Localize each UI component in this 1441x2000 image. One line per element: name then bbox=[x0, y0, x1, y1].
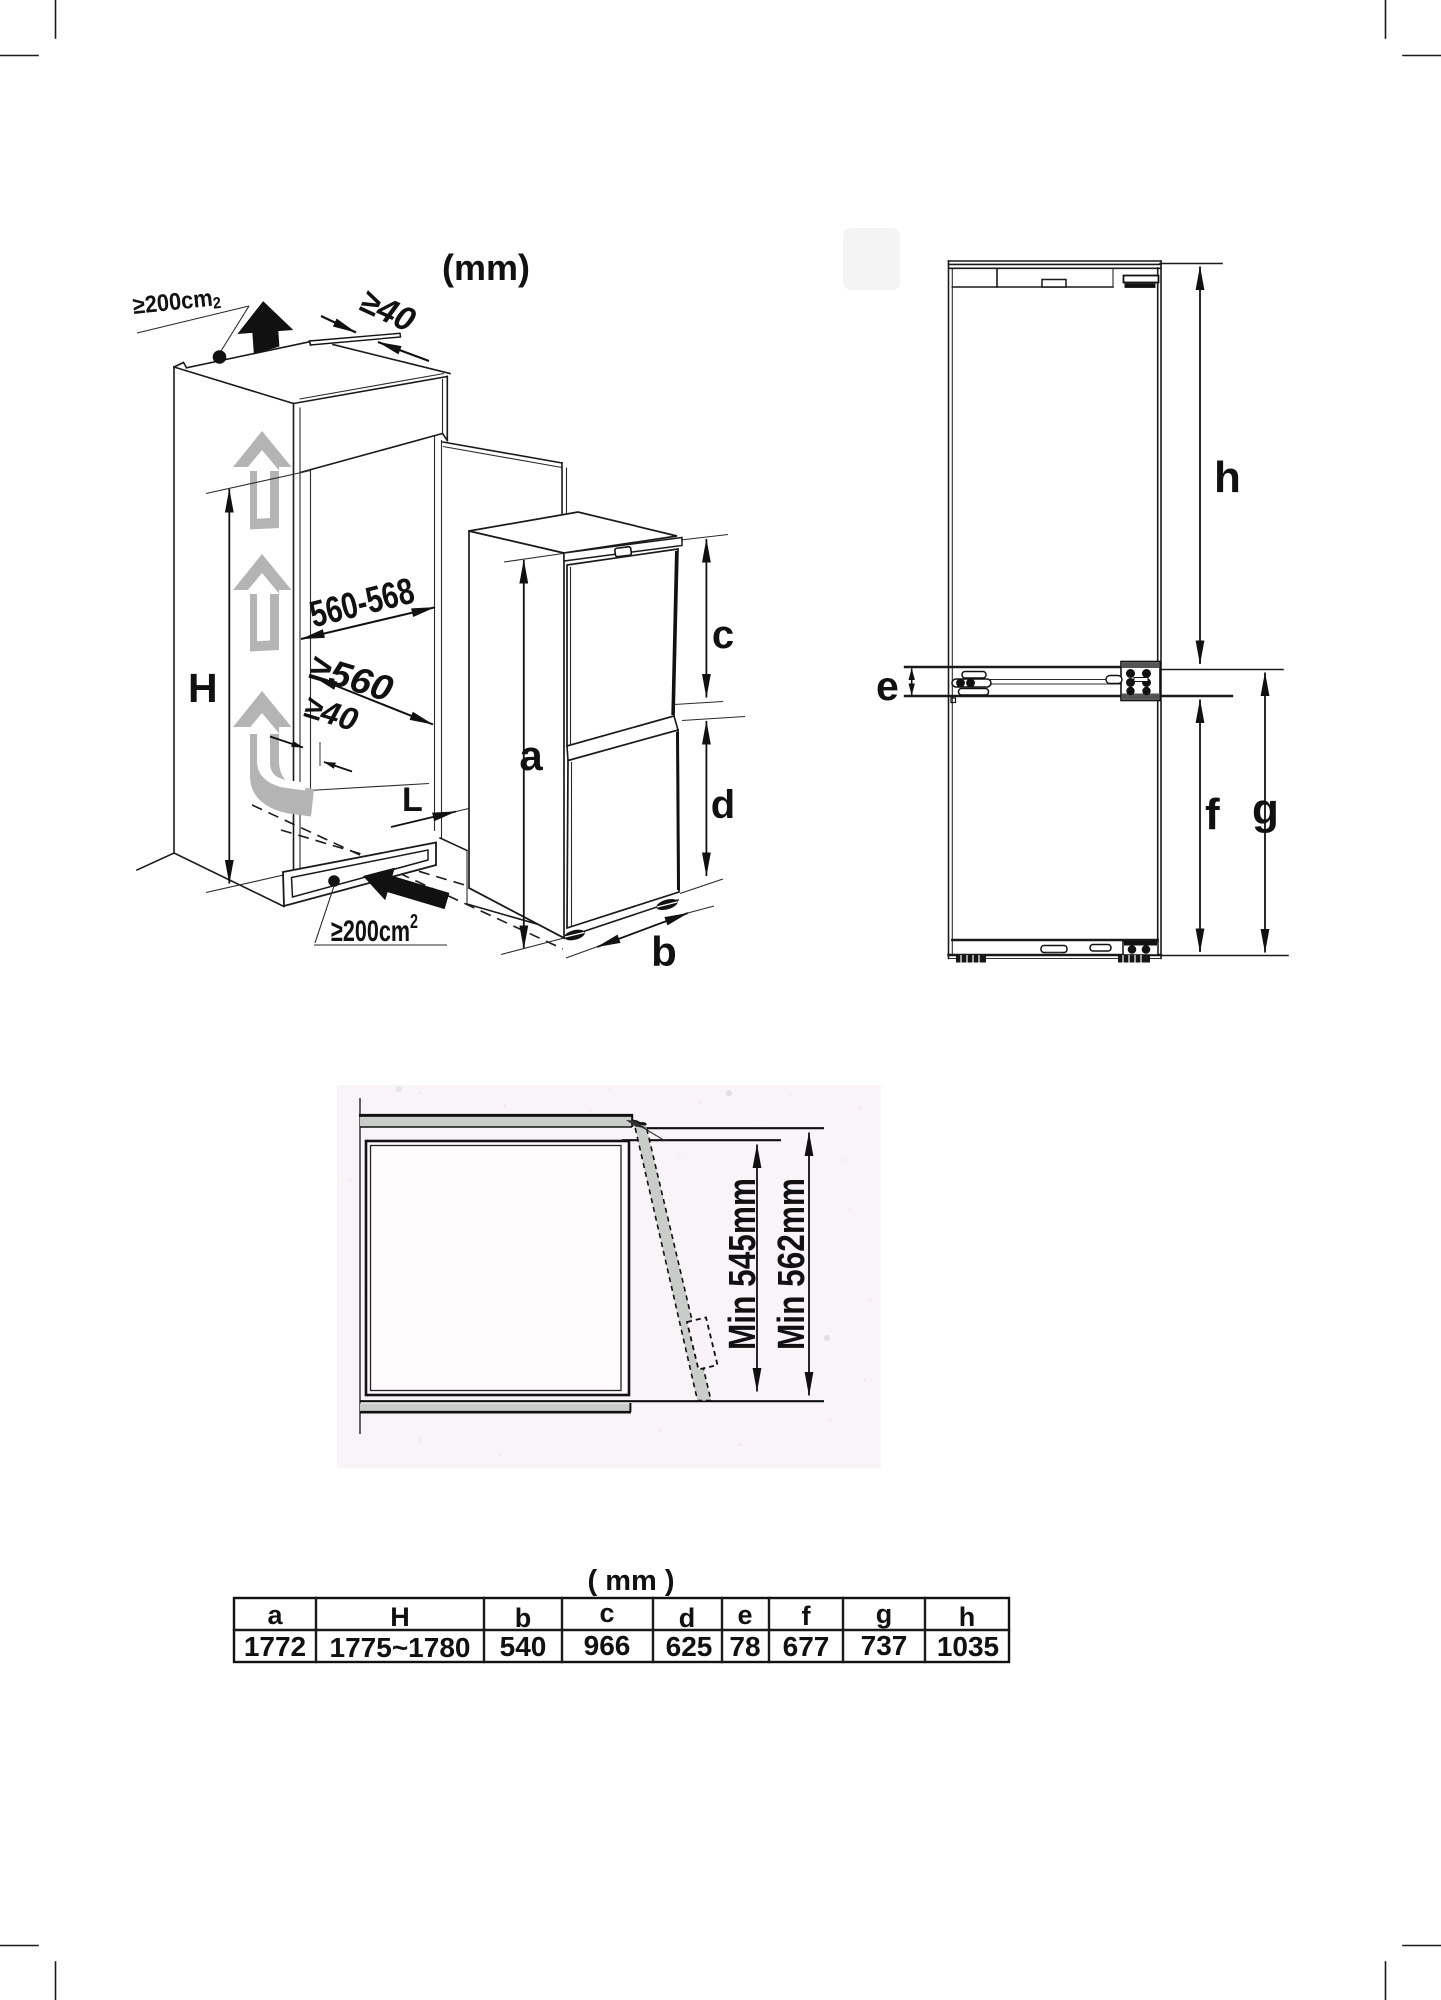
svg-text:h: h bbox=[959, 1602, 976, 1632]
svg-text:Min 562mm: Min 562mm bbox=[771, 1178, 813, 1350]
svg-text:H: H bbox=[188, 665, 218, 711]
svg-text:g: g bbox=[876, 1599, 893, 1629]
svg-text:( mm ): ( mm ) bbox=[588, 1565, 675, 1597]
svg-text:(mm): (mm) bbox=[442, 247, 530, 288]
svg-text:f: f bbox=[1205, 790, 1220, 839]
svg-text:625: 625 bbox=[666, 1631, 713, 1662]
svg-text:737: 737 bbox=[861, 1630, 908, 1661]
svg-text:L: L bbox=[402, 781, 423, 819]
svg-text:b: b bbox=[515, 1603, 532, 1633]
svg-text:d: d bbox=[679, 1603, 696, 1633]
svg-text:e: e bbox=[876, 663, 899, 709]
svg-text:1035: 1035 bbox=[937, 1631, 999, 1662]
svg-text:≥200cm2: ≥200cm2 bbox=[331, 911, 418, 948]
svg-text:c: c bbox=[712, 613, 734, 657]
svg-text:H: H bbox=[390, 1602, 410, 1632]
svg-text:540: 540 bbox=[500, 1631, 547, 1662]
svg-text:a: a bbox=[267, 1600, 283, 1630]
svg-text:f: f bbox=[802, 1601, 812, 1631]
svg-text:h: h bbox=[1214, 453, 1241, 502]
svg-text:1772: 1772 bbox=[244, 1631, 306, 1662]
svg-text:g: g bbox=[1252, 785, 1279, 834]
svg-text:966: 966 bbox=[584, 1630, 631, 1661]
svg-text:e: e bbox=[737, 1600, 752, 1630]
svg-text:1775~1780: 1775~1780 bbox=[330, 1632, 471, 1663]
svg-text:677: 677 bbox=[783, 1631, 830, 1662]
svg-text:78: 78 bbox=[729, 1631, 760, 1662]
svg-text:b: b bbox=[651, 928, 677, 975]
svg-text:c: c bbox=[599, 1598, 614, 1628]
svg-text:Min 545mm: Min 545mm bbox=[722, 1178, 764, 1350]
svg-text:d: d bbox=[711, 783, 735, 827]
svg-text:a: a bbox=[519, 732, 543, 779]
